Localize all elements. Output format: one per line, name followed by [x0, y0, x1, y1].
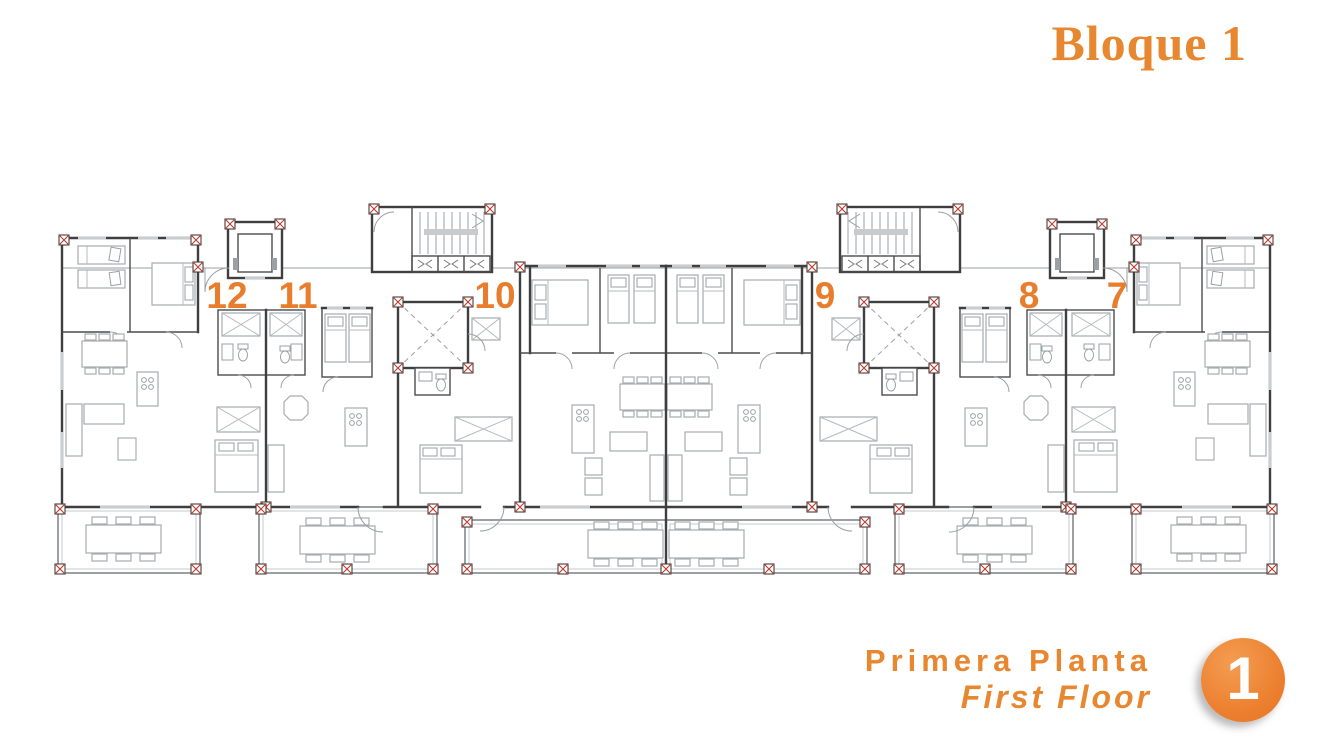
plan-half-mirrored: [666, 204, 1277, 574]
middle-apartment-bedroom: [322, 308, 372, 392]
terraces: [58, 507, 666, 573]
apartment-number-10: 10: [474, 275, 515, 316]
apartment-number-8: 8: [1019, 275, 1040, 316]
column-marker: [661, 564, 671, 574]
middle-apartment-living: [268, 396, 367, 492]
end-apartment-wing: [62, 238, 198, 505]
floor-number-badge: 1: [1201, 638, 1285, 722]
apartment-number-9: 9: [815, 275, 836, 316]
floor-name-spanish: Primera Planta: [865, 643, 1152, 679]
apartment-number-12: 12: [206, 275, 247, 316]
apartment-number-7: 7: [1107, 275, 1128, 316]
plan-half: [55, 204, 666, 574]
floor-name-english: First Floor: [961, 679, 1152, 716]
block-title: Bloque 1: [1051, 14, 1247, 72]
apartment-number-11: 11: [278, 275, 317, 316]
bathrooms: [218, 310, 305, 388]
brochure-page: 12 11 10 9 8 7 Bloque 1 Primera Planta F…: [0, 0, 1319, 756]
stair-core: [372, 207, 492, 272]
